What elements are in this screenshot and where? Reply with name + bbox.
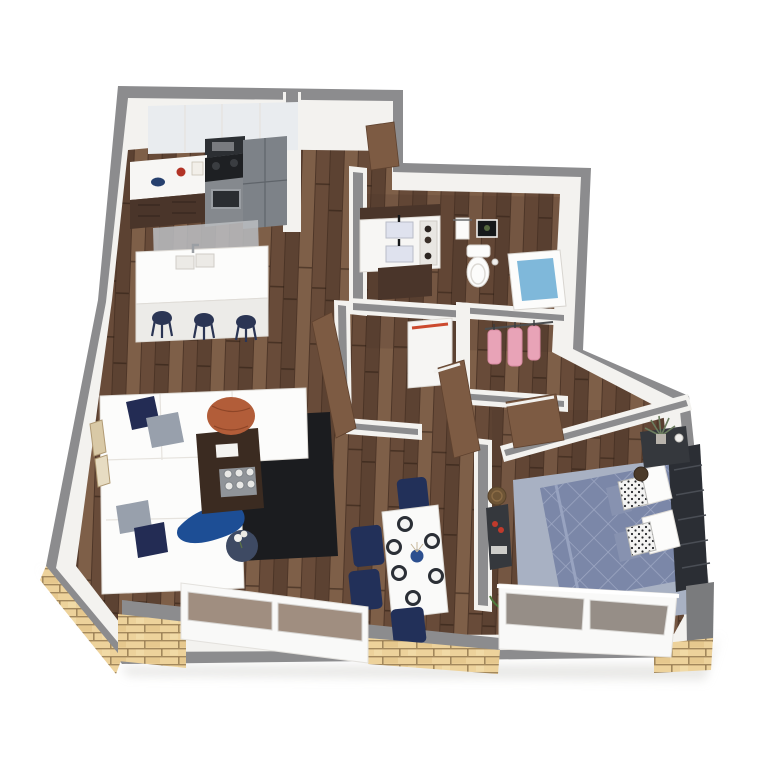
pink-garment <box>528 326 540 360</box>
toilet <box>467 245 490 287</box>
pink-garment <box>508 328 522 366</box>
bed-pillow-dotted <box>626 522 656 556</box>
cooktop <box>205 153 247 182</box>
flower-vase-flowers <box>234 534 242 542</box>
burner <box>230 159 238 167</box>
plate <box>399 518 412 531</box>
towel-bar <box>453 218 472 239</box>
nightstand-jar <box>675 434 683 442</box>
island-sink-basin <box>196 254 214 267</box>
side-table <box>226 530 258 562</box>
vanity-sink <box>386 246 413 262</box>
oven-door-window <box>212 190 240 208</box>
floor-plan-stage <box>0 0 768 768</box>
entry-door <box>366 122 399 170</box>
window-glass-pane <box>590 600 668 635</box>
toilet-paper-holder <box>492 259 498 265</box>
dining-chair <box>350 524 385 567</box>
vanity-base-cabinet <box>378 264 432 300</box>
bathtub <box>508 250 566 310</box>
stool-seat <box>194 313 214 327</box>
pouf-ottoman <box>207 397 255 435</box>
counter-art-card <box>192 162 203 175</box>
magazine <box>216 443 239 458</box>
sofa-pillow-gray <box>146 412 184 448</box>
brick-segment-left <box>118 614 186 668</box>
plate <box>393 567 406 580</box>
dresser-drawer <box>491 546 507 554</box>
bedroom-window-wall <box>497 584 679 657</box>
woven-basket <box>488 487 506 505</box>
dresser-flowers <box>492 521 498 527</box>
toiletry-bottle <box>425 237 432 244</box>
dresser-flowers <box>498 527 504 533</box>
dresser-top <box>486 504 512 570</box>
corner-wall-face-se <box>686 582 714 645</box>
nightstand-plant-pot <box>656 434 666 444</box>
stool-seat <box>152 311 172 325</box>
chair-seat <box>350 524 385 567</box>
coffee-table <box>196 428 264 514</box>
bedroom-west-wall-cap <box>478 444 488 606</box>
plate <box>388 541 401 554</box>
dining-chair <box>390 606 427 645</box>
bedroom-closet-door <box>506 394 564 448</box>
red-candle <box>177 168 186 177</box>
plate <box>426 535 439 548</box>
microwave-window <box>212 142 234 151</box>
plate <box>430 570 443 583</box>
toiletry-bottle <box>425 253 432 260</box>
plate <box>407 592 420 605</box>
blue-bowl <box>151 178 165 187</box>
pink-garment <box>488 330 501 364</box>
towel <box>456 218 469 239</box>
toiletry-bottle <box>425 226 432 233</box>
stool-seat <box>236 315 256 329</box>
bed-pillow-dotted <box>618 476 648 510</box>
tub-water <box>517 258 558 301</box>
sofa-pillow-navy <box>134 522 168 558</box>
burner <box>212 162 220 170</box>
window-glass-pane <box>506 593 584 630</box>
island-sink-basin <box>176 256 194 269</box>
art-plant-detail <box>484 225 490 231</box>
floor-plan-render <box>0 0 768 768</box>
vanity-sink <box>386 222 413 238</box>
chair-seat <box>390 606 427 645</box>
wall-art-frame <box>95 455 110 487</box>
flower-vase-flowers <box>241 531 248 538</box>
floor-pot <box>634 467 648 481</box>
toilet-bowl <box>467 257 489 287</box>
toilet-tank <box>467 245 490 257</box>
